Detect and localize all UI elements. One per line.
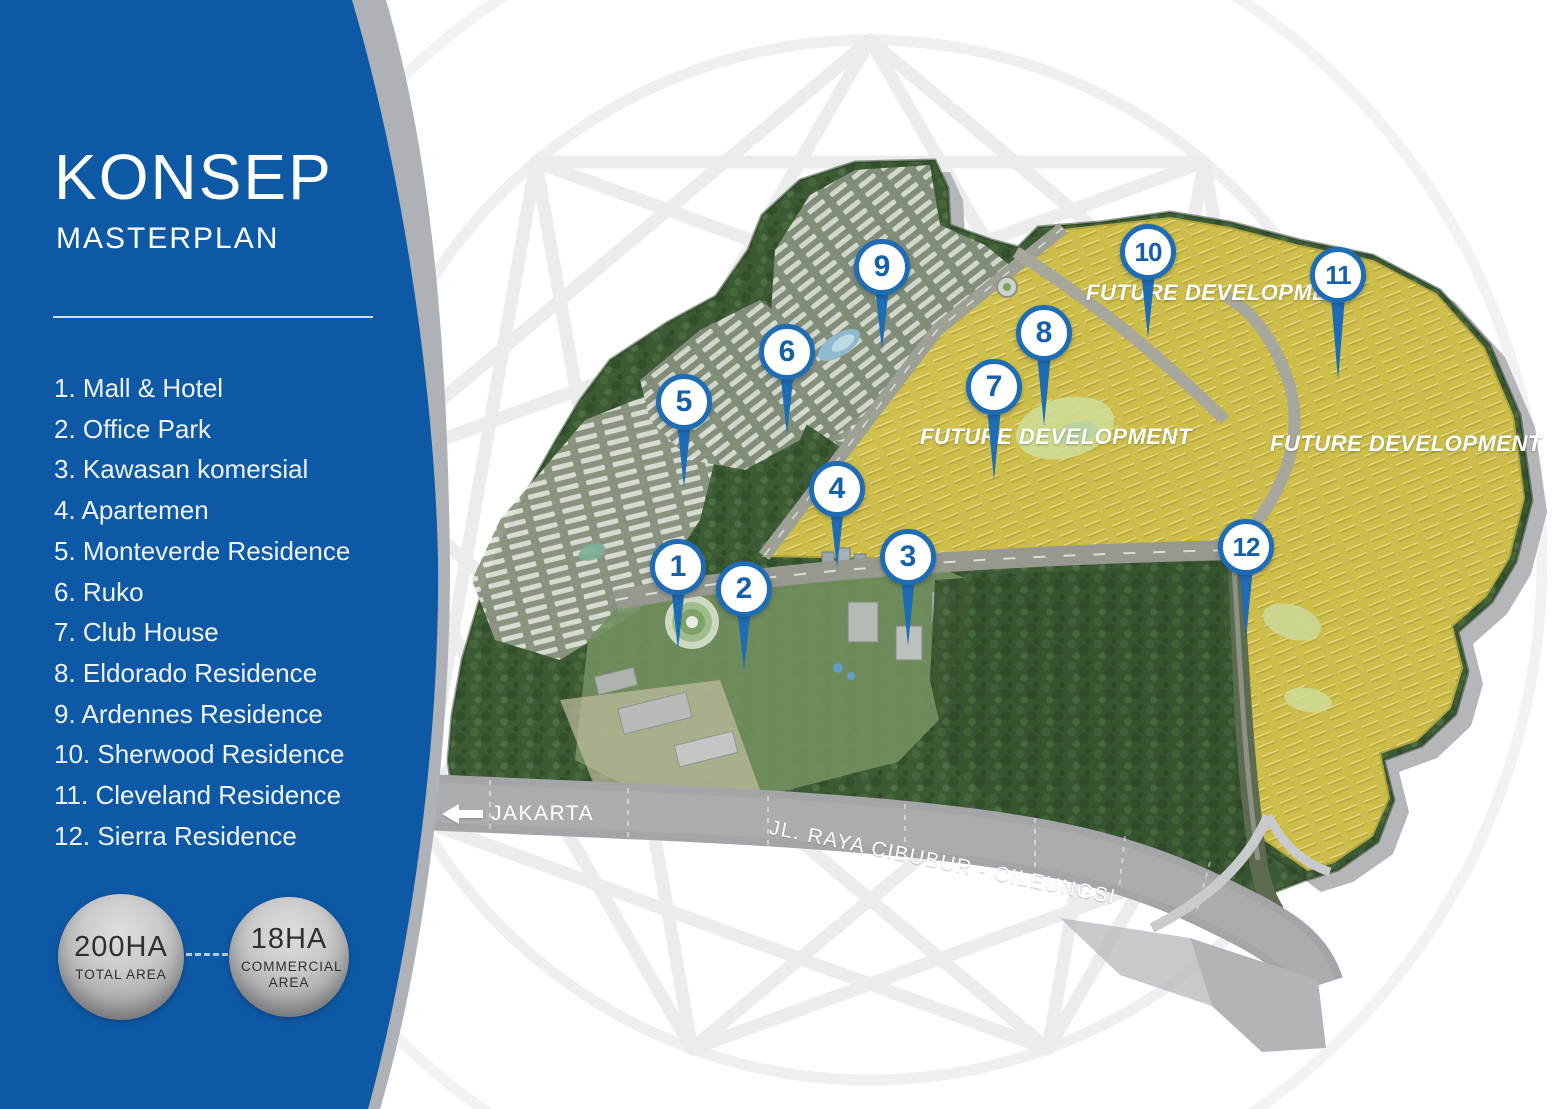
legend-item-2: 2. Office Park [54,409,350,450]
marker-number: 9 [854,239,910,295]
marker-number: 12 [1218,519,1274,575]
marker-number: 4 [809,461,865,517]
marker-number: 2 [716,561,772,617]
legend-item-6: 6. Ruko [54,572,350,613]
title-divider [53,316,373,318]
marker-number: 7 [966,359,1022,415]
stat-commercial-area-label: COMMERCIAL AREA [241,959,337,990]
map-marker-9: 9 [854,239,910,295]
marker-number: 10 [1120,224,1176,280]
map-marker-1: 1 [650,539,706,595]
marker-number: 6 [759,324,815,380]
map-marker-10: 10 [1120,224,1176,280]
map-marker-11: 11 [1310,247,1366,303]
legend-item-1: 1. Mall & Hotel [54,368,350,409]
stat-total-area-label: TOTAL AREA [75,967,167,983]
map-marker-12: 12 [1218,519,1274,575]
legend-list: 1. Mall & Hotel 2. Office Park 3. Kawasa… [54,368,350,856]
legend-item-12: 12. Sierra Residence [54,816,350,857]
stat-commercial-area-value: 18HA [251,923,328,956]
jakarta-direction: JAKARTA [442,802,594,826]
map-marker-7: 7 [966,359,1022,415]
map-marker-8: 8 [1016,305,1072,361]
marker-number: 3 [880,529,936,585]
map-marker-3: 3 [880,529,936,585]
legend-item-4: 4. Apartemen [54,490,350,531]
stat-total-area: 200HA TOTAL AREA [58,894,184,1020]
masterplan-slide: KONSEP MASTERPLAN 1. Mall & Hotel 2. Off… [0,0,1560,1109]
marker-number: 11 [1310,247,1366,303]
legend-item-11: 11. Cleveland Residence [54,775,350,816]
marker-number: 8 [1016,305,1072,361]
legend-item-3: 3. Kawasan komersial [54,449,350,490]
map-marker-5: 5 [656,374,712,430]
jakarta-label: JAKARTA [491,802,594,826]
left-arrow-icon [442,804,483,824]
legend-item-9: 9. Ardennes Residence [54,694,350,735]
marker-number: 5 [656,374,712,430]
marker-number: 1 [650,539,706,595]
legend-item-7: 7. Club House [54,612,350,653]
legend-item-5: 5. Monteverde Residence [54,531,350,572]
legend-item-8: 8. Eldorado Residence [54,653,350,694]
map-marker-2: 2 [716,561,772,617]
future-development-label-right: FUTURE DEVELOPMENT [1270,431,1542,457]
map-marker-6: 6 [759,324,815,380]
map-marker-4: 4 [809,461,865,517]
page-subtitle: MASTERPLAN [56,222,279,256]
stat-connector-dashes [186,953,228,956]
stat-commercial-area: 18HA COMMERCIAL AREA [229,897,349,1017]
stat-total-area-value: 200HA [74,931,168,964]
legend-item-10: 10. Sherwood Residence [54,734,350,775]
page-title: KONSEP [54,140,333,214]
future-development-label-middle: FUTURE DEVELOPMENT [920,424,1192,450]
